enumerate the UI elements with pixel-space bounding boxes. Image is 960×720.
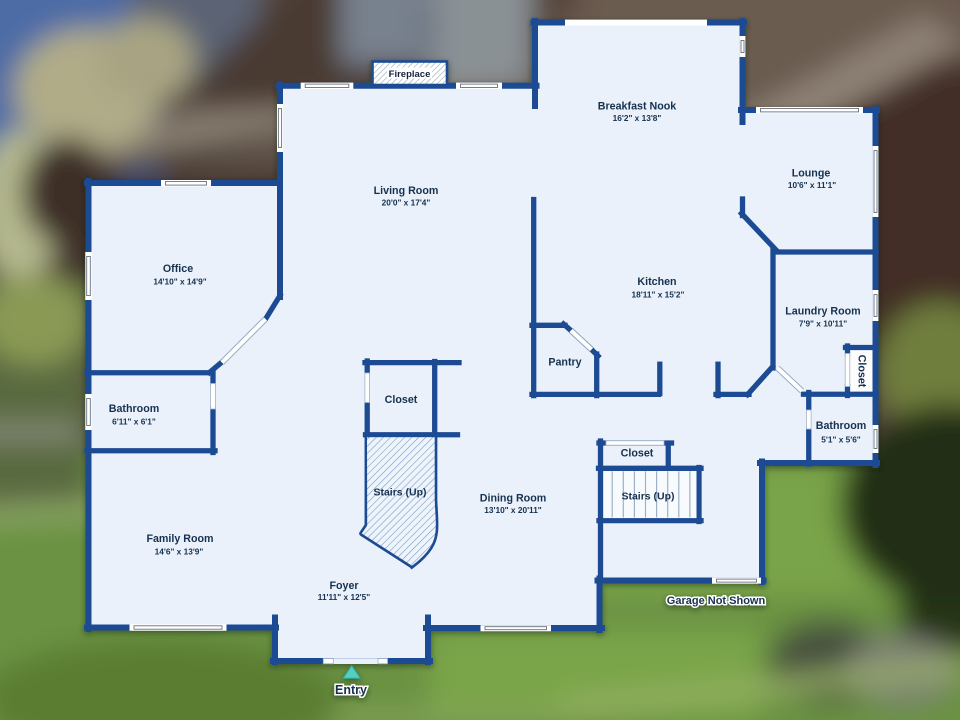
- svg-text:18'11" x 15'2": 18'11" x 15'2": [632, 290, 685, 300]
- svg-text:6'11" x 6'1": 6'11" x 6'1": [112, 417, 156, 427]
- svg-text:Dining Room: Dining Room: [480, 493, 547, 505]
- svg-text:Laundry Room: Laundry Room: [785, 306, 860, 318]
- svg-text:Bathroom: Bathroom: [816, 420, 866, 432]
- svg-text:Pantry: Pantry: [548, 357, 581, 369]
- svg-text:Bathroom: Bathroom: [109, 403, 159, 415]
- svg-text:Closet: Closet: [385, 394, 418, 406]
- svg-text:13'10" x 20'11": 13'10" x 20'11": [484, 505, 542, 515]
- svg-text:5'1" x 5'6": 5'1" x 5'6": [821, 435, 861, 445]
- svg-text:Family Room: Family Room: [146, 533, 213, 545]
- svg-text:Closet: Closet: [856, 355, 868, 388]
- svg-text:Stairs (Up): Stairs (Up): [621, 491, 674, 503]
- svg-text:Kitchen: Kitchen: [637, 276, 676, 288]
- svg-text:14'6" x 13'9": 14'6" x 13'9": [155, 547, 204, 557]
- svg-text:11'11" x 12'5": 11'11" x 12'5": [318, 592, 370, 602]
- svg-text:Lounge: Lounge: [792, 168, 831, 180]
- svg-text:16'2" x 13'8": 16'2" x 13'8": [613, 113, 662, 123]
- svg-text:Stairs (Up): Stairs (Up): [373, 487, 426, 499]
- svg-text:Living Room: Living Room: [374, 185, 439, 197]
- svg-text:20'0" x 17'4": 20'0" x 17'4": [382, 198, 431, 208]
- svg-text:Garage Not Shown: Garage Not Shown: [667, 595, 766, 607]
- svg-text:Fireplace: Fireplace: [389, 69, 431, 80]
- svg-text:Closet: Closet: [621, 448, 654, 460]
- svg-text:Foyer: Foyer: [329, 580, 358, 592]
- svg-text:14'10" x 14'9": 14'10" x 14'9": [153, 277, 206, 287]
- svg-text:Entry: Entry: [335, 683, 367, 697]
- svg-text:Office: Office: [163, 263, 193, 275]
- svg-text:Breakfast Nook: Breakfast Nook: [598, 101, 676, 113]
- svg-text:7'9" x 10'11": 7'9" x 10'11": [799, 319, 847, 329]
- svg-text:10'6" x 11'1": 10'6" x 11'1": [788, 180, 836, 190]
